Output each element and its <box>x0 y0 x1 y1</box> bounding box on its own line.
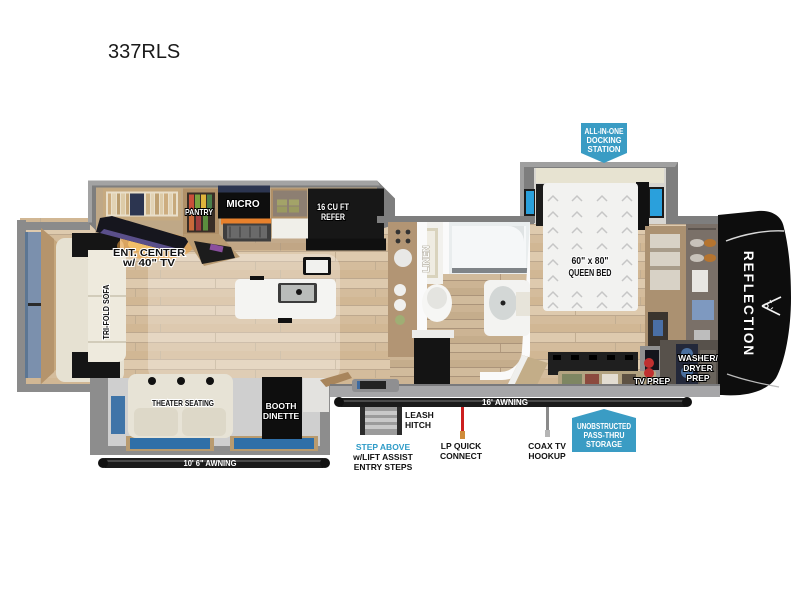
svg-text:STEP ABOVE: STEP ABOVE <box>356 442 411 452</box>
svg-text:337RLS: 337RLS <box>108 41 180 63</box>
svg-text:16' AWNING: 16' AWNING <box>482 397 528 407</box>
svg-text:WASHER/: WASHER/ <box>678 353 718 363</box>
svg-text:QUEEN BED: QUEEN BED <box>569 267 612 279</box>
svg-text:COAX TV: COAX TV <box>528 441 566 451</box>
svg-text:STORAGE: STORAGE <box>586 439 622 449</box>
svg-text:w/LIFT ASSIST: w/LIFT ASSIST <box>352 452 413 462</box>
svg-text:HOOKUP: HOOKUP <box>528 451 566 461</box>
svg-text:STATION: STATION <box>588 144 621 154</box>
svg-text:BOOTH: BOOTH <box>266 401 297 411</box>
svg-text:TRI-FOLD SOFA: TRI-FOLD SOFA <box>101 285 111 340</box>
svg-text:10' 6" AWNING: 10' 6" AWNING <box>184 458 237 468</box>
svg-text:DINETTE: DINETTE <box>263 411 300 421</box>
svg-text:ENTRY STEPS: ENTRY STEPS <box>354 462 413 472</box>
svg-text:TV PREP: TV PREP <box>634 376 671 386</box>
svg-text:PREP: PREP <box>686 373 709 383</box>
svg-text:HITCH: HITCH <box>405 420 431 430</box>
svg-text:LINEN: LINEN <box>421 246 431 273</box>
svg-text:60" x 80": 60" x 80" <box>572 255 609 267</box>
svg-text:PANTRY: PANTRY <box>185 207 213 217</box>
svg-text:CONNECT: CONNECT <box>440 451 483 461</box>
svg-text:THEATER SEATING: THEATER SEATING <box>152 398 214 408</box>
svg-text:REFER: REFER <box>321 212 345 223</box>
svg-text:REFLECTION: REFLECTION <box>741 251 756 357</box>
svg-text:MICRO: MICRO <box>226 199 260 210</box>
svg-text:LEASH: LEASH <box>405 410 434 420</box>
svg-text:DRYER: DRYER <box>683 363 712 373</box>
svg-text:w/ 40" TV: w/ 40" TV <box>122 257 175 269</box>
svg-text:LP QUICK: LP QUICK <box>441 441 482 451</box>
